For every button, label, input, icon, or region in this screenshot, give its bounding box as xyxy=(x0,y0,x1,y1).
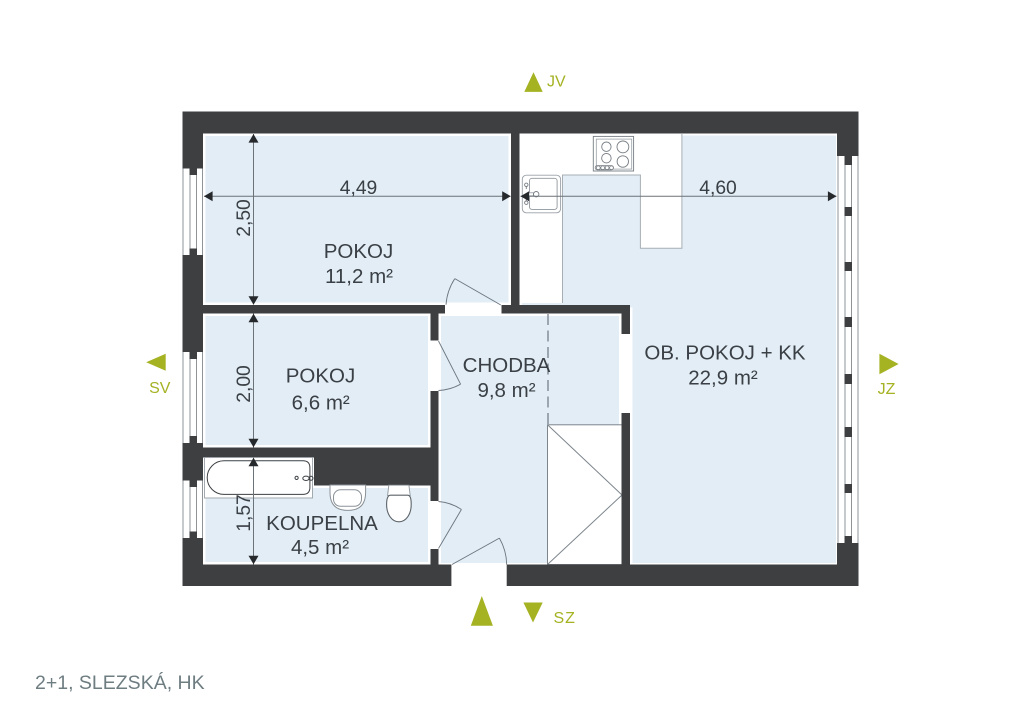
svg-text:6,6 m²: 6,6 m² xyxy=(292,392,350,415)
svg-text:OB. POKOJ + KK: OB. POKOJ + KK xyxy=(644,342,806,365)
svg-text:2,00: 2,00 xyxy=(234,365,255,403)
svg-text:22,9 m²: 22,9 m² xyxy=(688,367,758,390)
svg-text:4,5 m²: 4,5 m² xyxy=(291,536,349,559)
svg-text:9,8 m²: 9,8 m² xyxy=(477,379,535,402)
svg-text:2,50: 2,50 xyxy=(234,199,255,237)
svg-text:POKOJ: POKOJ xyxy=(324,240,394,263)
svg-text:11,2 m²: 11,2 m² xyxy=(325,265,393,288)
svg-text:KOUPELNA: KOUPELNA xyxy=(266,512,378,535)
svg-text:1,57: 1,57 xyxy=(234,494,255,532)
svg-text:JZ: JZ xyxy=(878,381,896,398)
svg-text:2+1, SLEZSKÁ, HK: 2+1, SLEZSKÁ, HK xyxy=(35,671,205,694)
svg-text:SV: SV xyxy=(149,380,171,397)
svg-text:SZ: SZ xyxy=(554,610,576,627)
svg-text:4,49: 4,49 xyxy=(340,178,378,199)
svg-text:JV: JV xyxy=(547,74,566,91)
svg-text:CHODBA: CHODBA xyxy=(463,354,551,377)
svg-text:4,60: 4,60 xyxy=(699,178,737,199)
svg-text:POKOJ: POKOJ xyxy=(286,365,356,388)
